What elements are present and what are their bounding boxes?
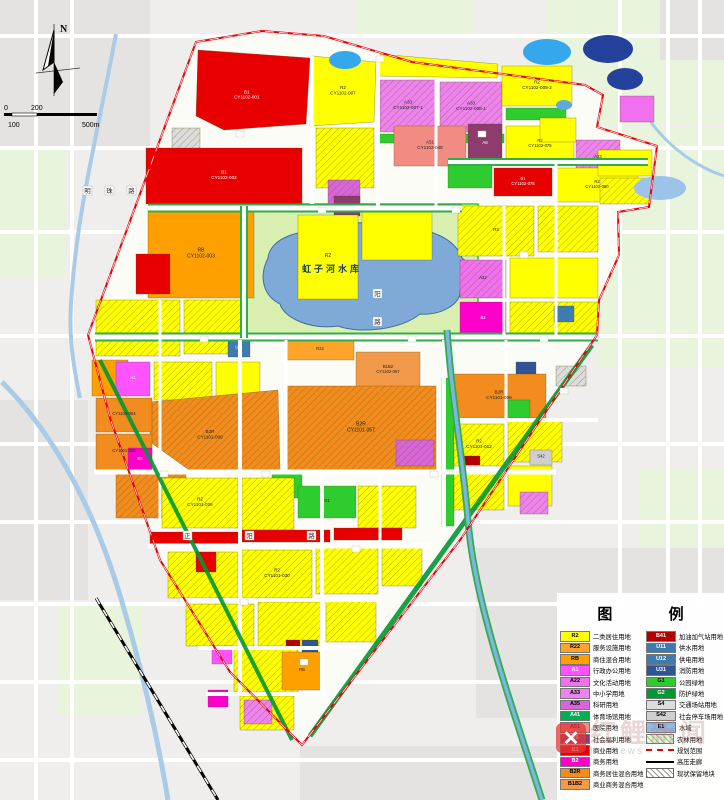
legend-row: A22文化活动用地 (560, 677, 646, 688)
legend-label: 现状保留地块 (677, 769, 715, 778)
legend-label: 公园绿地 (679, 678, 704, 687)
legend-chip-B1: B1 (560, 745, 590, 756)
svg-text:U11: U11 (235, 345, 243, 350)
road-name-label: 路 (128, 186, 135, 195)
svg-text:B2: B2 (480, 315, 486, 320)
legend-row: U31消防用地 (646, 665, 724, 676)
parcel-R2 (362, 208, 432, 260)
legend-label: 高压走廊 (677, 757, 702, 766)
legend-row: B1B2商业商务混合用地 (560, 779, 646, 790)
legend-row: U12供电用地 (646, 654, 724, 665)
legend-row: B2商务用地 (560, 756, 646, 767)
legend-row: R22服务设施用地 (560, 642, 646, 653)
svg-text:A6: A6 (482, 140, 488, 145)
svg-text:B2: B2 (137, 456, 143, 461)
legend-label: 二类居住用地 (593, 632, 631, 641)
svg-text:N: N (60, 24, 68, 35)
svg-text:R2: R2 (493, 227, 499, 232)
legend-label: 供水用地 (679, 643, 704, 652)
svg-text:G1: G1 (324, 498, 330, 503)
parcel-R2 (510, 258, 598, 298)
legend-chip-E1: E1 (646, 722, 676, 733)
legend-label: 加油加气站用地 (679, 632, 723, 641)
legend-row: E1水域 (646, 722, 724, 733)
legend-chip-R2: R2 (560, 631, 590, 642)
legend-chip-S42: S42 (646, 711, 676, 722)
legend-chip-U31: U31 (646, 665, 676, 676)
legend-chip-RB: RB (560, 654, 590, 665)
legend-chip-G1: G1 (646, 677, 676, 688)
parcel-A22 (620, 96, 654, 122)
legend-row: A41体育场馆用地 (560, 711, 646, 722)
svg-text:A22: A22 (479, 275, 487, 280)
svg-text:虹子河水库: 虹子河水库 (302, 263, 362, 274)
legend-label: 供电用地 (679, 655, 704, 664)
parcel-G1 (506, 400, 530, 418)
legend-row: A6社会福利用地 (560, 734, 646, 745)
legend-chip-G2: G2 (646, 688, 676, 699)
legend-chip-A51: A51 (560, 722, 590, 733)
legend-symbol-e2 (646, 735, 674, 744)
svg-text:A33: A33 (594, 154, 602, 159)
legend-symbol-keep (646, 769, 674, 778)
legend-row: A1行政办公用地 (560, 665, 646, 676)
legend-chip-A35: A35 (560, 700, 590, 711)
legend-row: RB商住混合用地 (560, 654, 646, 665)
legend-row: A33中小学用地 (560, 688, 646, 699)
svg-text:CY1101-005: CY1101-005 (112, 448, 136, 453)
legend-label: 消防用地 (679, 666, 704, 675)
legend-chip-A41: A41 (560, 711, 590, 722)
legend-label: 体育场馆用地 (593, 712, 631, 721)
legend-label: 商业用地 (593, 746, 618, 755)
legend-chip-B2: B2 (560, 757, 590, 768)
legend-row: 规划范围 (646, 745, 724, 756)
legend-chip-U11: U11 (646, 643, 676, 654)
road-name-label: 路 (308, 531, 315, 540)
svg-text:100: 100 (8, 122, 20, 129)
legend-title: 图 例 (583, 603, 724, 624)
parcel-R2 (540, 118, 576, 142)
legend-row: 现状保留地块 (646, 768, 724, 779)
planning-map-page: { "map": { "north_label": "N", "reservoi… (0, 0, 724, 800)
legend-row: A35科研用地 (560, 699, 646, 710)
road-name-label: 正 (184, 532, 191, 540)
legend-symbol-hv (646, 758, 674, 767)
legend-row: R2二类居住用地 (560, 631, 646, 642)
svg-text:A1: A1 (130, 375, 136, 380)
svg-text:CY1101-004: CY1101-004 (112, 411, 136, 416)
svg-text:0: 0 (4, 105, 8, 112)
legend-chip-R22: R22 (560, 643, 590, 654)
legend-label: 服务设施用地 (593, 643, 631, 652)
legend-label: 水域 (679, 723, 692, 732)
parcel-B1 (136, 254, 170, 294)
legend-label: 商务居住混合用地 (593, 769, 643, 778)
legend-row: B41加油加气站用地 (646, 631, 724, 642)
svg-text:RB: RB (299, 667, 305, 672)
legend-chip-B2R: B2R (560, 768, 590, 779)
parcel-B41 (464, 456, 480, 465)
legend-label: 行政办公用地 (593, 666, 631, 675)
legend-chip-B41: B41 (646, 631, 676, 642)
legend-chip-A1: A1 (560, 665, 590, 676)
legend-column-right: B41加油加气站用地U11供水用地U12供电用地U31消防用地G1公园绿地G2防… (646, 631, 724, 790)
road-name-label: 路 (374, 317, 381, 326)
legend-label: 农林用地 (677, 735, 702, 744)
legend-label: 文化活动用地 (593, 678, 631, 687)
legend-row: A51医院用地 (560, 722, 646, 733)
road-name-label: 阳 (246, 531, 253, 540)
legend-label: 商务用地 (593, 757, 618, 766)
legend-chip-A33: A33 (560, 688, 590, 699)
legend-panel: 图 例 R2二类居住用地R22服务设施用地RB商住混合用地A1行政办公用地A22… (557, 593, 724, 800)
legend-label: 医院用地 (593, 723, 618, 732)
legend-symbol-plan (646, 746, 674, 755)
legend-chip-U12: U12 (646, 654, 676, 665)
legend-chip-A22: A22 (560, 677, 590, 688)
legend-column-left: R2二类居住用地R22服务设施用地RB商住混合用地A1行政办公用地A22文化活动… (560, 631, 646, 790)
parcel-B1 (196, 50, 310, 130)
legend-label: 规划范围 (677, 746, 702, 755)
road-name-label: 珠 (106, 186, 113, 195)
legend-row: B1商业用地 (560, 745, 646, 756)
legend-chip-B1B2: B1B2 (560, 779, 590, 790)
legend-label: 中小学用地 (593, 689, 624, 698)
svg-text:200: 200 (31, 105, 43, 112)
legend-label: 交通场站用地 (679, 700, 717, 709)
legend-row: G2防护绿地 (646, 688, 724, 699)
legend-chip-A6: A6 (560, 734, 590, 745)
legend-row: B2R商务居住混合用地 (560, 768, 646, 779)
legend-label: 防护绿地 (679, 689, 704, 698)
legend-label: 社会停车场用地 (679, 712, 723, 721)
svg-text:R22: R22 (316, 346, 324, 351)
legend-label: 商住混合用地 (593, 655, 631, 664)
svg-text:500m: 500m (82, 122, 100, 129)
legend-row: U11供水用地 (646, 642, 724, 653)
legend-label: 商业商务混合用地 (593, 780, 643, 789)
legend-row: S4交通场站用地 (646, 699, 724, 710)
legend-row: S42社会停车场用地 (646, 711, 724, 722)
parcel-B1 (242, 530, 330, 542)
legend-chip-S4: S4 (646, 700, 676, 711)
svg-text:R2: R2 (325, 253, 332, 259)
legend-row: G1公园绿地 (646, 677, 724, 688)
svg-text:S42: S42 (537, 454, 545, 459)
road-name-label: 明 (84, 187, 91, 195)
legend-label: 科研用地 (593, 700, 618, 709)
legend-row: 高压走廊 (646, 756, 724, 767)
legend-label: 社会福利用地 (593, 735, 631, 744)
legend-row: 农林用地 (646, 734, 724, 745)
parcel-B1 (334, 528, 402, 540)
road-name-label: 阳 (374, 289, 381, 298)
